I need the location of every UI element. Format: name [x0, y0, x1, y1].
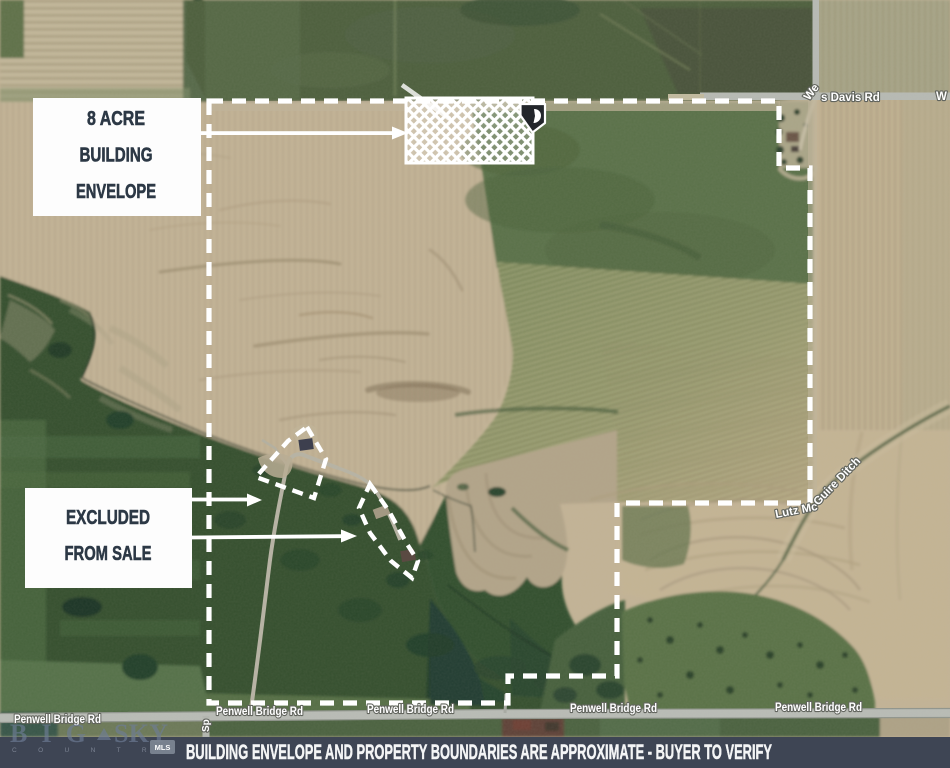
svg-text:Sp: Sp [201, 719, 212, 732]
svg-text:W: W [936, 91, 947, 103]
svg-text:Penwell Bridge Rd: Penwell Bridge Rd [570, 703, 657, 715]
svg-text:EXCLUDED: EXCLUDED [66, 506, 150, 529]
svg-text:FROM SALE: FROM SALE [65, 542, 152, 565]
svg-text:Penwell Bridge Rd: Penwell Bridge Rd [775, 702, 862, 714]
svg-text:BIG: BIG [10, 719, 96, 748]
svg-text:BUILDING: BUILDING [80, 145, 153, 167]
svg-text:BUILDING ENVELOPE AND PROPERTY: BUILDING ENVELOPE AND PROPERTY BOUNDARIE… [186, 741, 772, 764]
svg-text:MLS: MLS [155, 743, 171, 752]
svg-text:Penwell Bridge Rd: Penwell Bridge Rd [216, 706, 303, 718]
svg-text:s Davis Rd: s Davis Rd [821, 92, 880, 104]
svg-text:8 ACRE: 8 ACRE [87, 108, 145, 130]
svg-text:ENVELOPE: ENVELOPE [76, 181, 156, 203]
svg-text:Penwell Bridge Rd: Penwell Bridge Rd [367, 704, 454, 716]
